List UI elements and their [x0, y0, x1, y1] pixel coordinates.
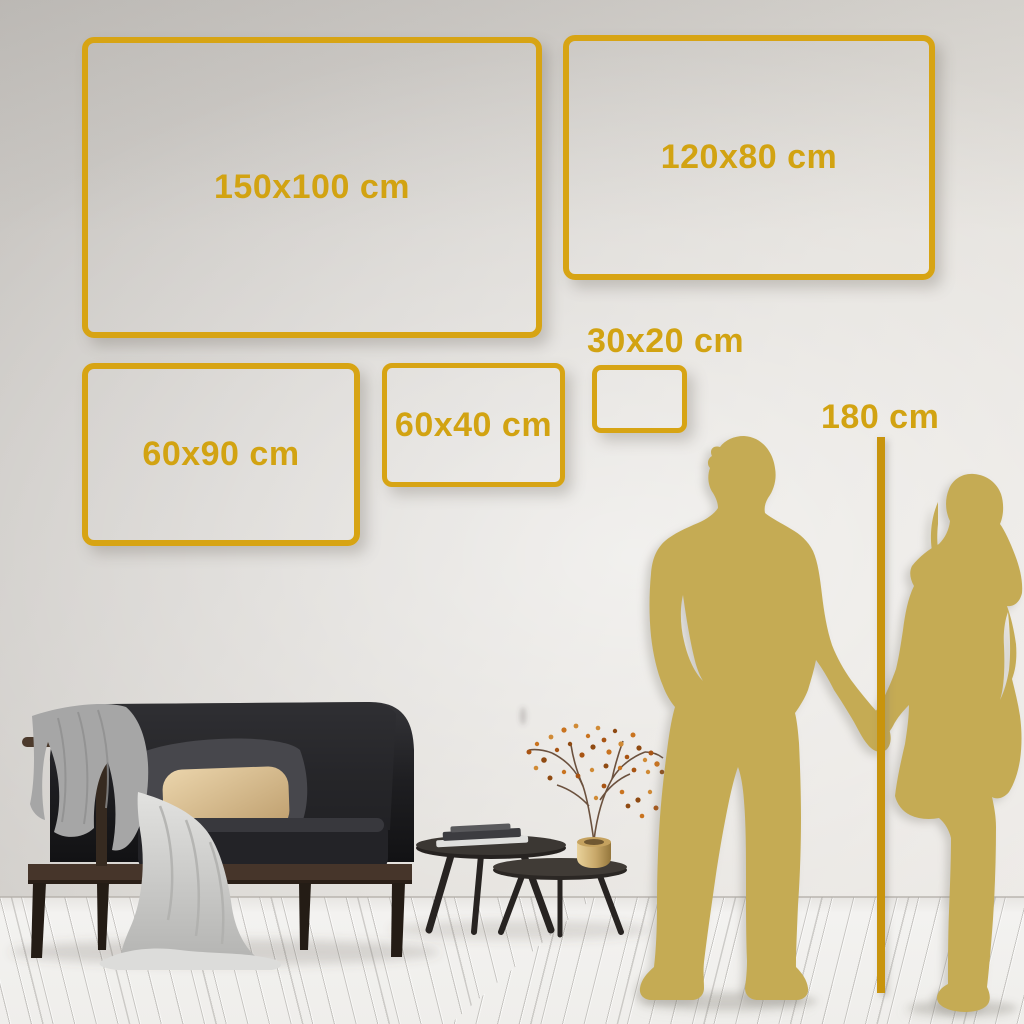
man-silhouette	[640, 436, 891, 1000]
size-frame-120x80: 120x80 cm	[563, 35, 935, 280]
size-frame-60x90: 60x90 cm	[82, 363, 360, 546]
sofa-leg	[97, 883, 109, 950]
size-label-30x20: 30x20 cm	[587, 322, 744, 361]
wall-smudge	[520, 707, 527, 725]
size-frame-60x40: 60x40 cm	[382, 363, 565, 487]
gray-blanket	[30, 704, 148, 851]
size-label-120x80: 120x80 cm	[661, 138, 838, 177]
size-guide-poster: 150x100 cm 120x80 cm 60x90 cm 60x40 cm 3…	[0, 0, 1024, 1024]
sofa-leg	[299, 883, 311, 950]
woman-silhouette	[867, 474, 1022, 1012]
couple-silhouette	[598, 420, 1024, 1024]
height-ruler-line	[877, 437, 885, 993]
size-label-60x90: 60x90 cm	[142, 435, 299, 474]
size-label-150x100: 150x100 cm	[214, 168, 410, 207]
room-scene	[0, 688, 700, 1024]
size-frame-150x100: 150x100 cm	[82, 37, 542, 338]
sofa	[22, 702, 414, 970]
size-label-60x40: 60x40 cm	[395, 406, 552, 445]
